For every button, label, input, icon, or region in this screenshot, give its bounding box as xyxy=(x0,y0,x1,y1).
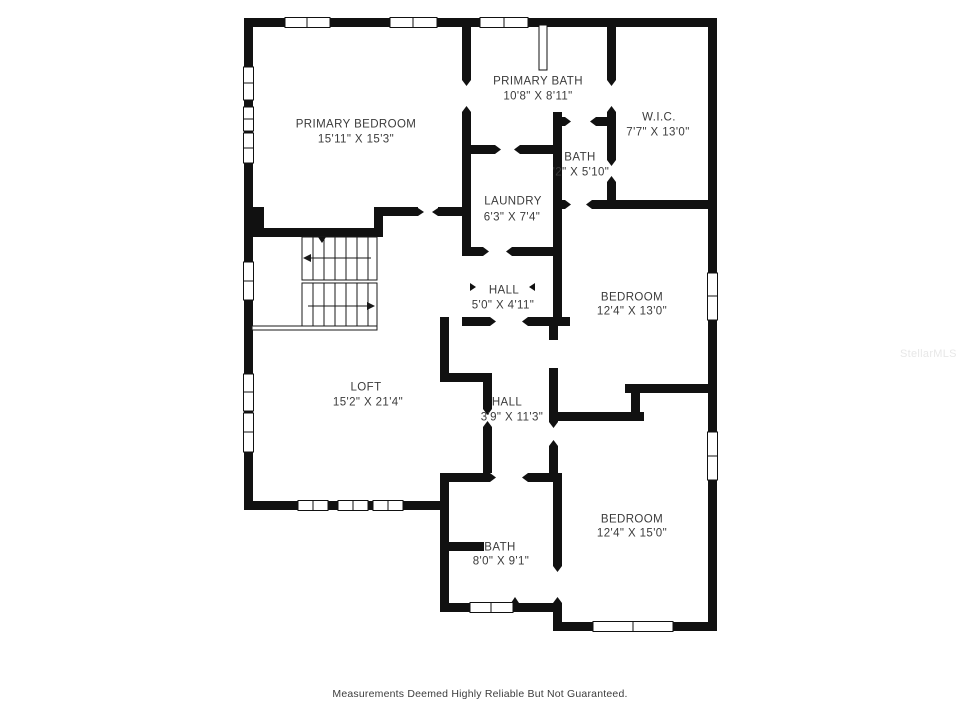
room-dims-bath-lower: 8'0" X 9'1" xyxy=(473,556,530,568)
room-name-hall-lower: HALL xyxy=(492,397,522,409)
room-dims-laundry: 6'3" X 7'4" xyxy=(484,212,541,224)
room-name-laundry: LAUNDRY xyxy=(484,196,542,208)
room-name-bedroom-east: BEDROOM xyxy=(601,292,663,304)
room-dims-primary-bedroom: 15'11" X 15'3" xyxy=(318,134,394,146)
room-dims-bath-upper: '2" X 5'10" xyxy=(553,167,610,179)
staircase xyxy=(252,237,377,330)
room-dims-bedroom-east: 12'4" X 13'0" xyxy=(597,306,667,318)
floorplan-canvas: PRIMARY BEDROOM 15'11" X 15'3" PRIMARY B… xyxy=(0,0,960,720)
floorplan-drawing xyxy=(0,0,960,720)
room-name-primary-bedroom: PRIMARY BEDROOM xyxy=(296,119,417,131)
room-dims-loft: 15'2" X 21'4" xyxy=(333,397,403,409)
room-name-primary-bath: PRIMARY BATH xyxy=(493,76,583,88)
room-name-loft: LOFT xyxy=(351,382,382,394)
room-name-bath-upper: BATH xyxy=(564,152,595,164)
room-dims-primary-bath: 10'8" X 8'11" xyxy=(503,91,572,103)
room-name-bedroom-southeast: BEDROOM xyxy=(601,514,663,526)
shower-glass-partition xyxy=(539,25,547,70)
watermark: StellarMLS xyxy=(900,348,957,360)
room-name-bath-lower: BATH xyxy=(484,542,515,554)
room-dims-hall-upper: 5'0" X 4'11" xyxy=(472,300,535,312)
stair-arrowheads xyxy=(303,254,375,310)
room-name-hall-upper: HALL xyxy=(489,285,519,297)
room-dims-bedroom-southeast: 12'4" X 15'0" xyxy=(597,528,667,540)
room-dims-wic: 7'7" X 13'0" xyxy=(626,127,689,139)
disclaimer-text: Measurements Deemed Highly Reliable But … xyxy=(0,688,960,700)
room-dims-hall-lower: 3'9" X 11'3" xyxy=(481,412,544,424)
room-name-wic: W.I.C. xyxy=(642,112,676,124)
